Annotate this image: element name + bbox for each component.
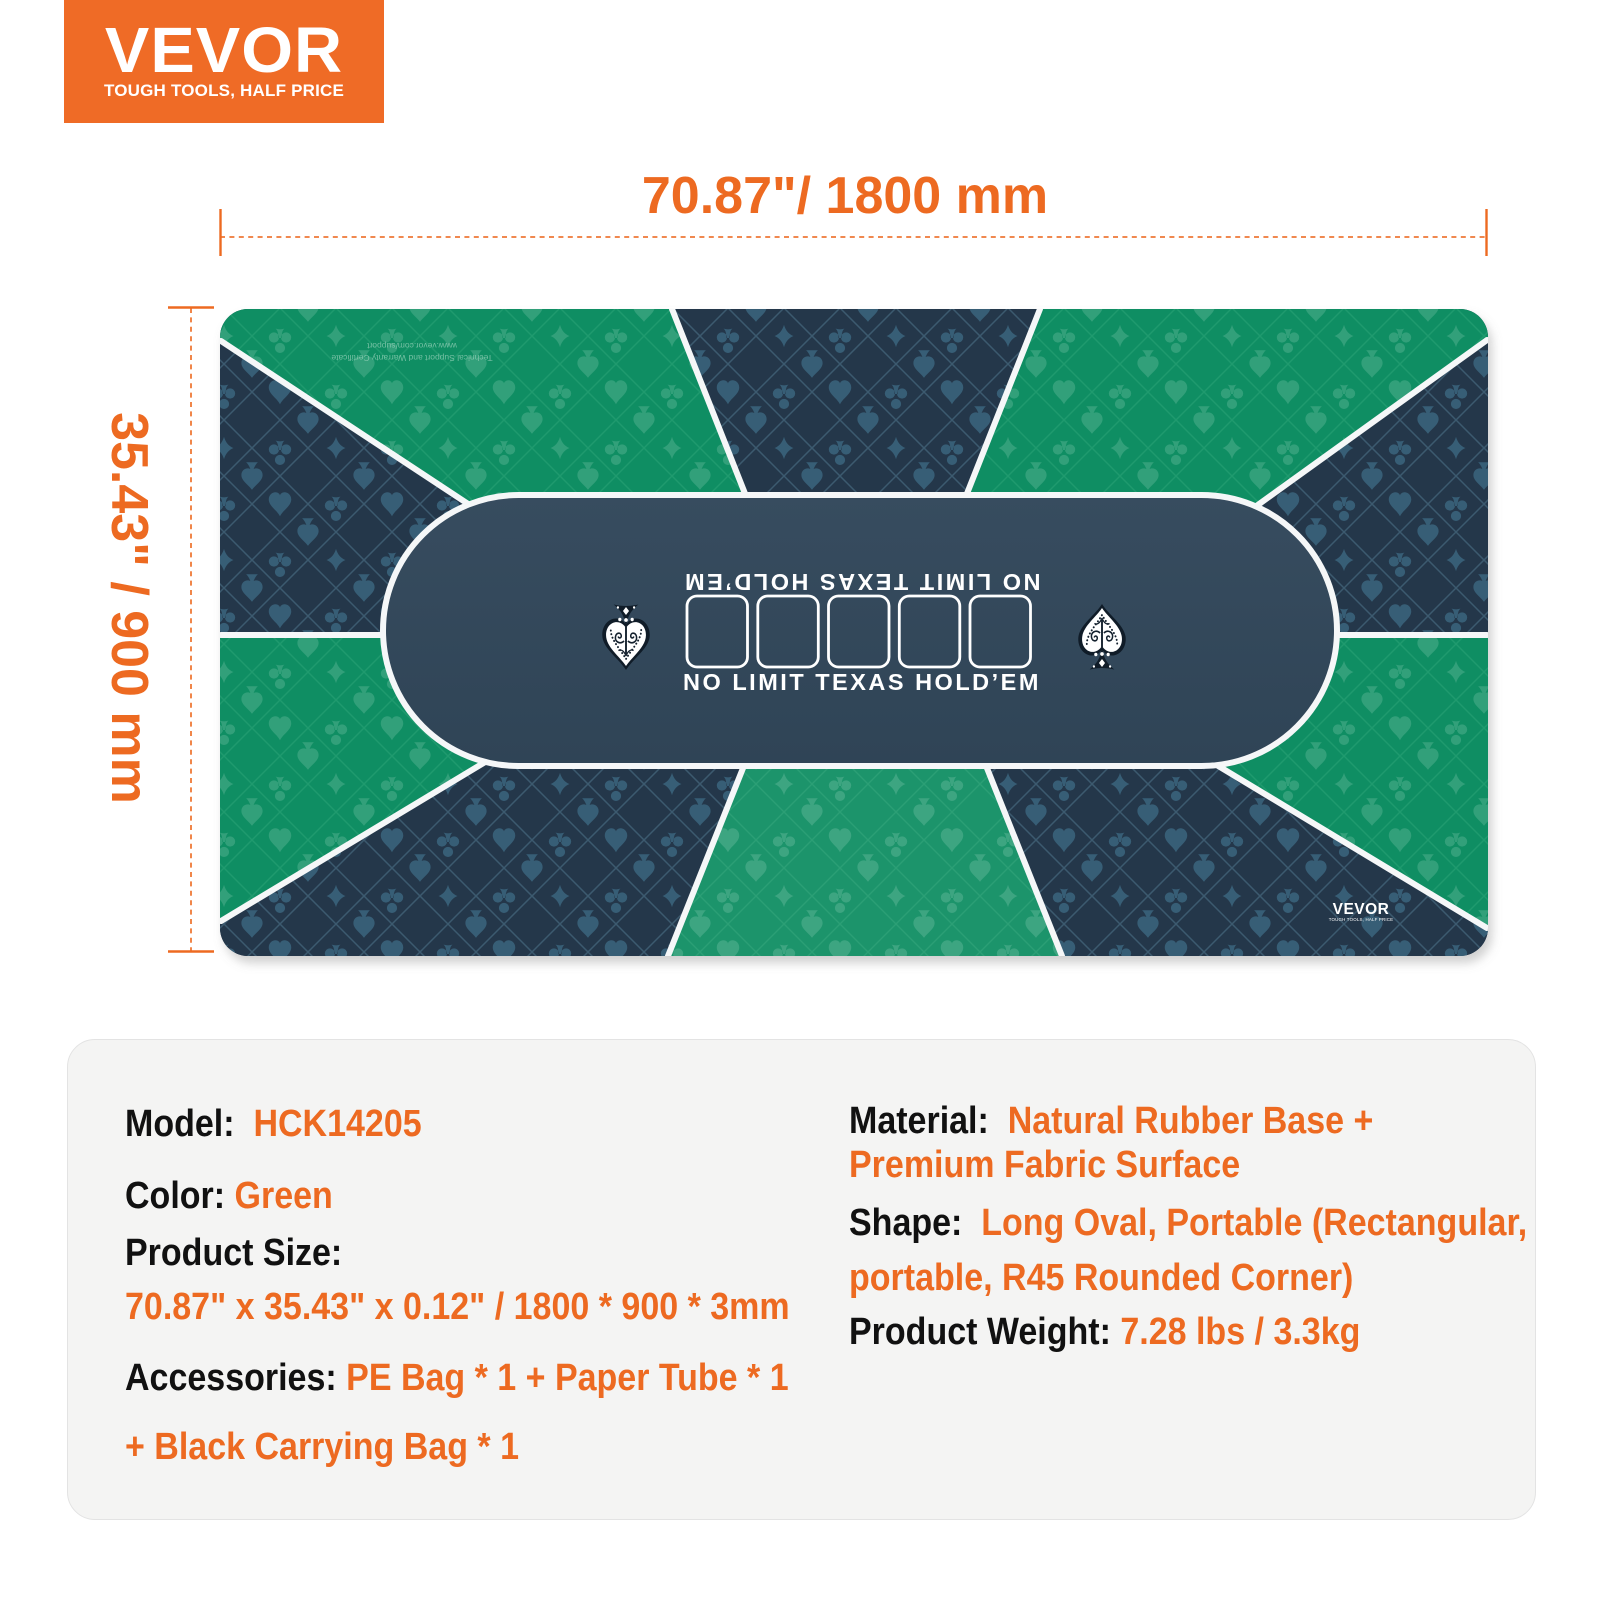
svg-text:35.43" / 900 mm: 35.43" / 900 mm bbox=[100, 412, 158, 804]
svg-text:NO LIMIT TEXAS HOLD’EM: NO LIMIT TEXAS HOLD’EM bbox=[683, 569, 1041, 595]
svg-text:VEVOR: VEVOR bbox=[1333, 901, 1390, 918]
svg-text:Technical Support and Warranty: Technical Support and Warranty Certifica… bbox=[331, 353, 493, 363]
svg-text:www.vevor.com/support: www.vevor.com/support bbox=[366, 341, 457, 351]
svg-text:70.87"/ 1800 mm: 70.87"/ 1800 mm bbox=[642, 167, 1048, 225]
svg-text:TOUGH TOOLS, HALF PRICE: TOUGH TOOLS, HALF PRICE bbox=[1329, 917, 1394, 922]
svg-text:NO LIMIT TEXAS HOLD’EM: NO LIMIT TEXAS HOLD’EM bbox=[683, 669, 1041, 695]
